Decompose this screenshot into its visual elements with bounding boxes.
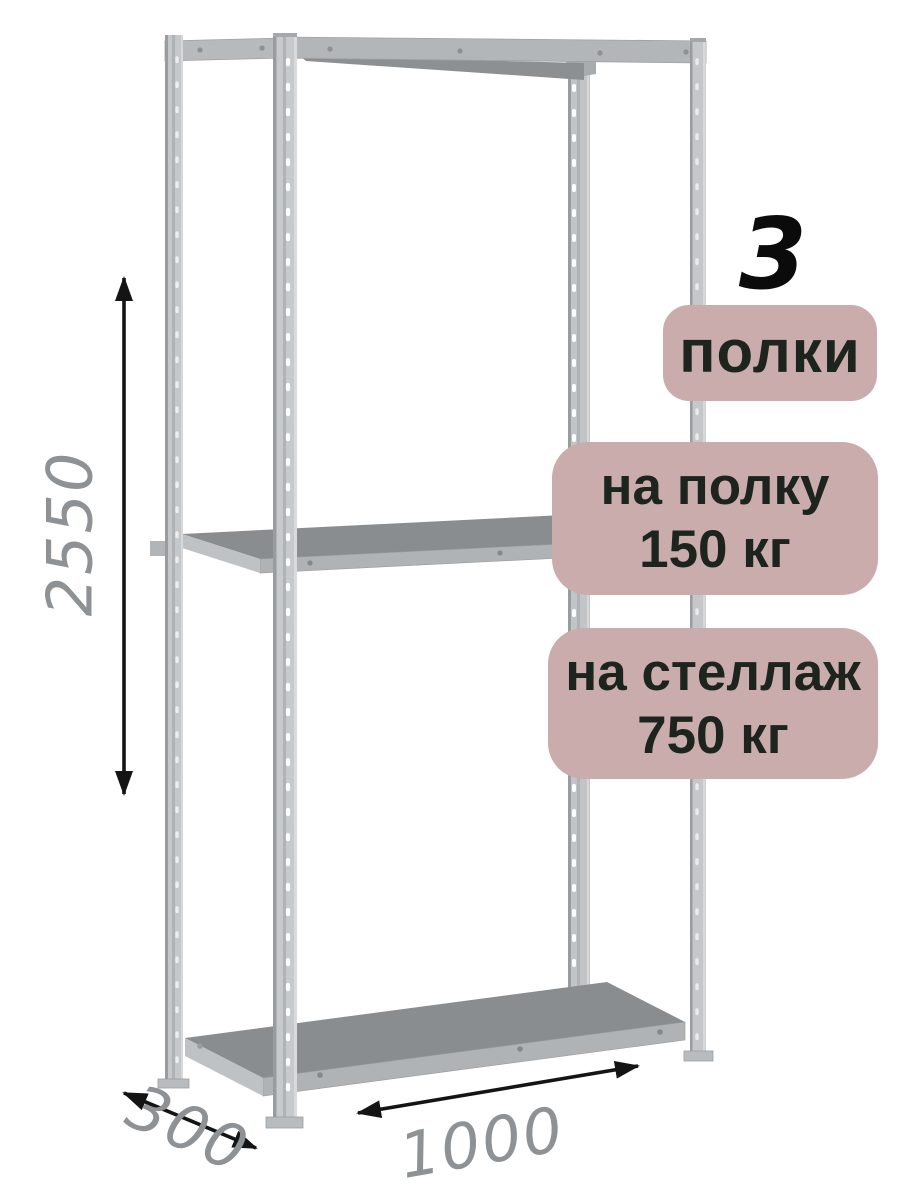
per-rack-load-value: 750 кг: [548, 704, 878, 767]
per-shelf-load-badge: на полку 150 кг: [552, 442, 878, 595]
top-front-beam: [278, 37, 706, 63]
per-shelf-load-text: на полку: [552, 455, 878, 518]
rack-illustration: [0, 0, 900, 1200]
per-rack-load-badge: на стеллаж 750 кг: [548, 628, 878, 779]
post-front-left: [266, 33, 303, 1128]
shelf-count-number: 3: [713, 200, 833, 310]
per-shelf-load-value: 150 кг: [552, 518, 878, 581]
bottom-shelf: [185, 982, 685, 1096]
post-back-left: [158, 35, 189, 1088]
top-shelf: [165, 37, 706, 80]
post-foot: [684, 1051, 713, 1061]
product-image: 2550 300 1000 3 полки на полку 150 кг на…: [0, 0, 900, 1200]
height-dimension-label: 2550: [34, 384, 107, 684]
per-rack-load-text: на стеллаж: [548, 641, 878, 704]
shelves-badge: полки: [663, 305, 877, 401]
